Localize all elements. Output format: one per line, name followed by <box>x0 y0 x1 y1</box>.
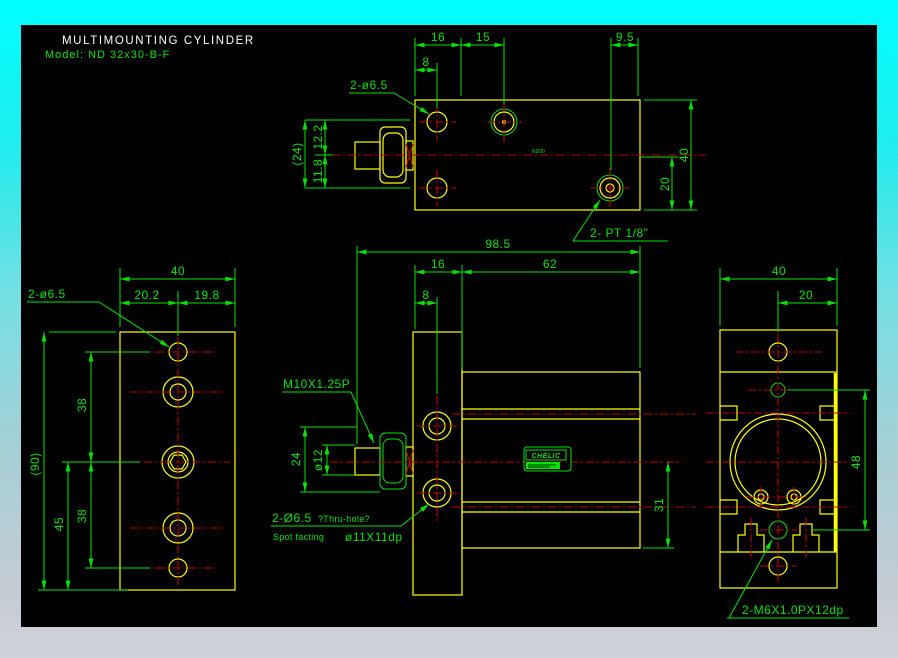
front-label-hole-callout: 2-Ø6.5 <box>272 511 312 525</box>
front-label-hole-note: ?Thru-hole? <box>318 514 370 524</box>
front-dim-8: 8 <box>422 288 429 302</box>
side-dim-38-lower: 38 <box>75 509 89 523</box>
top-dim-15: 15 <box>476 30 490 44</box>
top-dim-8: 8 <box>422 55 429 69</box>
front-label-spotface-prefix: Spot facting <box>273 532 324 542</box>
front-dim-98-5: 98.5 <box>485 237 510 251</box>
end-dim-20: 20 <box>799 288 813 302</box>
side-dim-90: (90) <box>28 452 42 475</box>
nameplate-logo: CHELIC <box>531 453 561 460</box>
top-dim-40: 40 <box>677 148 691 162</box>
top-view: 16 15 9.5 8 40 20 (24) 12.2 11.8 2-ø6.5 … <box>290 30 706 241</box>
top-label-marking: ND30 <box>532 149 545 155</box>
side-dim-45: 45 <box>52 517 66 531</box>
end-label-thread: 2-M6X1.0PX12dp <box>742 603 844 617</box>
nameplate: CHELIC <box>524 447 571 471</box>
top-label-port: 2- PT 1/8" <box>590 226 648 240</box>
side-label-holes: 2-ø6.5 <box>28 287 66 301</box>
top-dim-16: 16 <box>431 30 445 44</box>
top-label-holes: 2-ø6.5 <box>350 78 388 92</box>
front-dim-16: 16 <box>431 257 445 271</box>
end-dim-40: 40 <box>772 264 786 278</box>
top-dim-9-5: 9.5 <box>616 30 634 44</box>
end-dim-48: 48 <box>849 455 863 469</box>
front-dim-31: 31 <box>652 498 666 512</box>
top-dim-24: (24) <box>290 142 304 165</box>
title-block: MULTIMOUNTING CYLINDER Model: ND 32x30-B… <box>45 35 255 61</box>
front-dim-62: 62 <box>543 257 557 271</box>
side-dim-20-2: 20.2 <box>134 288 159 302</box>
side-view: 40 20.2 19.8 (90) 45 38 38 2-ø6.5 <box>27 264 235 590</box>
window-frame: MULTIMOUNTING CYLINDER Model: ND 32x30-B… <box>0 0 898 658</box>
top-dim-11-8: 11.8 <box>311 159 325 183</box>
side-dim-38-upper: 38 <box>75 398 89 412</box>
front-view: CHELIC 98.5 <box>271 237 696 595</box>
front-label-spotface-size: ø11X11dp <box>345 530 403 544</box>
side-dim-40: 40 <box>171 264 185 278</box>
top-dim-12-2: 12.2 <box>311 124 325 149</box>
top-dim-20: 20 <box>658 177 672 191</box>
front-dim-24: 24 <box>289 452 303 466</box>
drawing-model: Model: ND 32x30-B-F <box>45 49 170 61</box>
drawing-canvas: MULTIMOUNTING CYLINDER Model: ND 32x30-B… <box>21 25 877 627</box>
cad-drawing: MULTIMOUNTING CYLINDER Model: ND 32x30-B… <box>21 25 877 627</box>
side-dim-19-8: 19.8 <box>194 288 219 302</box>
front-dim-dia12: ø12 <box>311 449 325 471</box>
front-label-thread: M10X1.25P <box>283 377 350 391</box>
end-view: 40 20 48 2-M6X1.0PX12dp <box>706 264 870 618</box>
drawing-title: MULTIMOUNTING CYLINDER <box>62 35 255 47</box>
